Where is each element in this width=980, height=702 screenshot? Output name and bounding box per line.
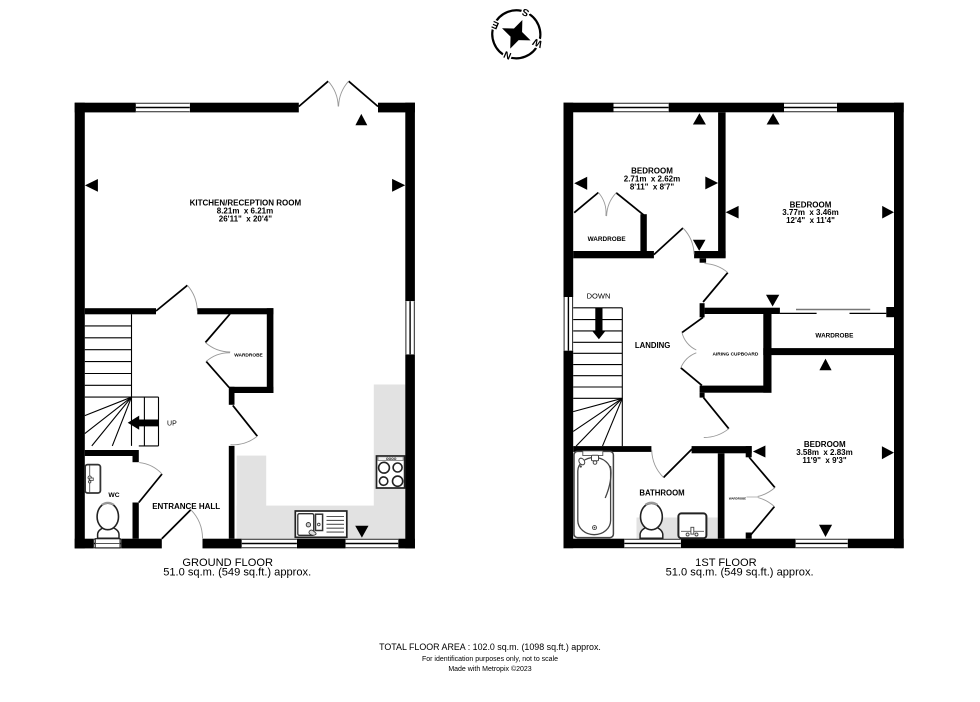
svg-text:12'4" x 11'4": 12'4" x 11'4": [786, 216, 835, 225]
svg-text:Made with Metropix ©2023: Made with Metropix ©2023: [448, 665, 531, 673]
svg-text:11'9" x 9'3": 11'9" x 9'3": [802, 456, 847, 465]
svg-text:UP: UP: [167, 421, 177, 428]
svg-text:LANDING: LANDING: [635, 341, 671, 350]
svg-text:WARDROBE: WARDROBE: [729, 497, 746, 501]
svg-text:26'11" x 20'4": 26'11" x 20'4": [219, 215, 272, 224]
svg-text:TOTAL FLOOR AREA : 102.0 sq.m.: TOTAL FLOOR AREA : 102.0 sq.m. (1098 sq.…: [379, 642, 601, 652]
svg-text:For identification purposes on: For identification purposes only, not to…: [422, 656, 558, 663]
svg-text:WARDROBE: WARDROBE: [588, 236, 627, 243]
svg-text:51.0 sq.m. (549 sq.ft.) approx: 51.0 sq.m. (549 sq.ft.) approx.: [666, 567, 814, 579]
svg-text:8'11" x 8'7": 8'11" x 8'7": [630, 183, 675, 192]
svg-text:DOWN: DOWN: [587, 291, 611, 300]
svg-text:WARDROBE: WARDROBE: [234, 353, 263, 359]
svg-text:BATHROOM: BATHROOM: [639, 489, 684, 498]
svg-text:WC: WC: [108, 492, 119, 499]
svg-text:AIRING CUPBOARD: AIRING CUPBOARD: [712, 351, 758, 357]
svg-text:ENTRANCE HALL: ENTRANCE HALL: [152, 502, 220, 511]
svg-text:51.0 sq.m. (549 sq.ft.) approx: 51.0 sq.m. (549 sq.ft.) approx.: [163, 567, 311, 579]
svg-text:WARDROBE: WARDROBE: [815, 333, 854, 340]
